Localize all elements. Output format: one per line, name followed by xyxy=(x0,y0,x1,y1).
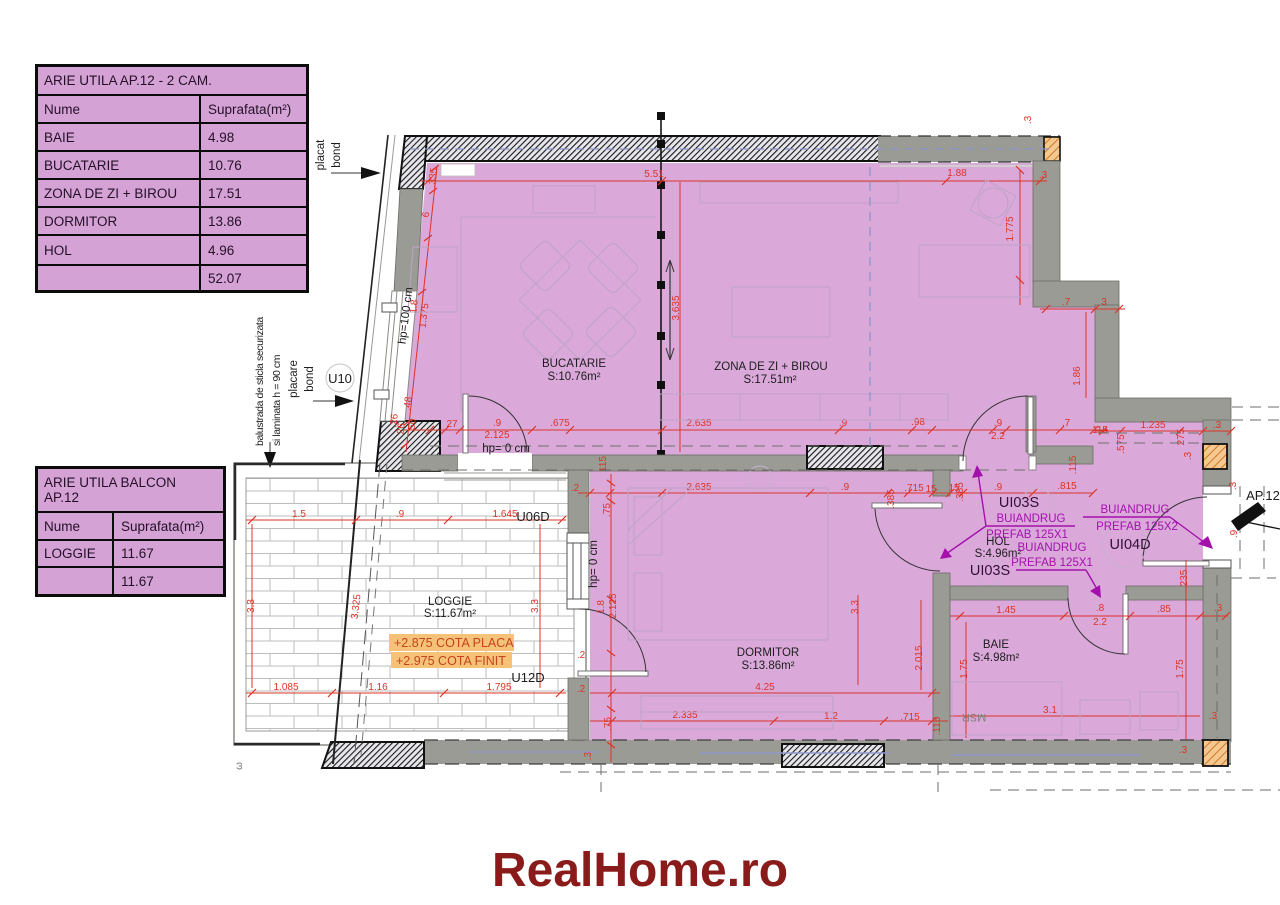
svg-text:.7: .7 xyxy=(1062,297,1071,308)
svg-text:S:17.51m²: S:17.51m² xyxy=(743,374,796,386)
svg-text:3.3: 3.3 xyxy=(246,599,257,613)
svg-text:1.775: 1.775 xyxy=(1005,216,1016,241)
svg-text:1.085: 1.085 xyxy=(273,682,298,693)
svg-text:BUIANDRUG: BUIANDRUG xyxy=(1017,542,1086,554)
svg-text:LOGGIE: LOGGIE xyxy=(428,596,472,608)
svg-text:+2.875 COTA PLACA: +2.875 COTA PLACA xyxy=(394,636,514,650)
svg-text:S:4.98m²: S:4.98m² xyxy=(973,652,1020,664)
svg-text:.675: .675 xyxy=(550,418,570,429)
svg-text:hp= 0 cm: hp= 0 cm xyxy=(588,540,600,588)
svg-text:2.2: 2.2 xyxy=(991,431,1005,442)
svg-text:1.75: 1.75 xyxy=(1175,659,1186,679)
svg-text:UI03S: UI03S xyxy=(970,563,1010,579)
svg-text:3.3: 3.3 xyxy=(530,599,541,613)
svg-text:U10: U10 xyxy=(328,371,352,386)
svg-text:1.86: 1.86 xyxy=(1072,366,1083,386)
svg-text:.715: .715 xyxy=(900,712,920,723)
svg-text:BUCATARIE: BUCATARIE xyxy=(542,358,606,370)
svg-text:+2.975 COTA FINIT: +2.975 COTA FINIT xyxy=(396,654,506,668)
svg-text:1.2: 1.2 xyxy=(824,711,838,722)
svg-text:1.45: 1.45 xyxy=(996,605,1016,616)
svg-text:1.645: 1.645 xyxy=(492,509,517,520)
svg-text:S:13.86m²: S:13.86m² xyxy=(741,660,794,672)
svg-text:.385: .385 xyxy=(886,489,897,509)
svg-text:.3: .3 xyxy=(1039,170,1048,181)
svg-text:BUIANDRUG: BUIANDRUG xyxy=(1100,504,1169,516)
svg-text:bond: bond xyxy=(304,366,316,392)
svg-text:.3: .3 xyxy=(583,751,594,760)
svg-text:.3: .3 xyxy=(1023,115,1034,124)
svg-text:MSR: MSR xyxy=(962,711,987,723)
svg-text:1.16: 1.16 xyxy=(368,682,388,693)
svg-text:.2: .2 xyxy=(571,483,580,494)
svg-text:UI04D: UI04D xyxy=(1109,537,1150,553)
svg-text:1.88: 1.88 xyxy=(947,168,967,179)
svg-text:3.3: 3.3 xyxy=(850,600,861,614)
svg-text:3: 3 xyxy=(1101,297,1107,308)
svg-text:.56: .56 xyxy=(406,418,419,434)
svg-text:1.795: 1.795 xyxy=(486,682,511,693)
svg-text:PREFAB 125X1: PREFAB 125X1 xyxy=(1011,557,1093,569)
svg-text:2.125: 2.125 xyxy=(608,593,619,618)
svg-text:.85: .85 xyxy=(1157,604,1171,615)
svg-text:15: 15 xyxy=(925,484,937,495)
svg-text:ZONA DE ZI + BIROU: ZONA DE ZI + BIROU xyxy=(714,361,827,373)
svg-text:5.51: 5.51 xyxy=(644,169,664,180)
svg-text:UI03S: UI03S xyxy=(999,495,1039,511)
svg-text:ω: ω xyxy=(234,762,245,770)
svg-text:1.235: 1.235 xyxy=(1140,420,1165,431)
svg-text:.2: .2 xyxy=(577,650,586,661)
svg-text:.3: .3 xyxy=(1213,420,1222,431)
svg-text:2.2: 2.2 xyxy=(1093,617,1107,628)
svg-text:.115: .115 xyxy=(932,716,943,735)
svg-text:15: 15 xyxy=(948,483,960,494)
svg-text:1.75: 1.75 xyxy=(959,659,970,679)
svg-text:1.8: 1.8 xyxy=(596,600,607,614)
svg-text:.575: .575 xyxy=(1116,434,1127,454)
svg-text:S:11.67m²: S:11.67m² xyxy=(424,608,476,620)
svg-text:.3: .3 xyxy=(1179,745,1188,756)
svg-text:.8: .8 xyxy=(1096,603,1105,614)
svg-text:.3: .3 xyxy=(1209,711,1218,722)
svg-text:.3: .3 xyxy=(1183,451,1194,460)
svg-text:1.5: 1.5 xyxy=(292,509,306,520)
svg-text:3.1: 3.1 xyxy=(1043,705,1057,716)
svg-text:.7: .7 xyxy=(1062,418,1071,429)
svg-text:si laminata h = 90 cm: si laminata h = 90 cm xyxy=(271,354,283,446)
svg-text:.9: .9 xyxy=(994,418,1003,429)
svg-text:BUIANDRUG: BUIANDRUG xyxy=(996,513,1065,525)
svg-text:.9: .9 xyxy=(396,509,405,520)
svg-text:PREFAB 125X1: PREFAB 125X1 xyxy=(986,529,1068,541)
svg-text:bond: bond xyxy=(331,142,343,168)
svg-text:.3: .3 xyxy=(1228,481,1239,490)
svg-text:.48: .48 xyxy=(402,396,415,412)
svg-text:.2: .2 xyxy=(577,684,586,695)
svg-text:placat: placat xyxy=(315,139,327,170)
svg-text:.98: .98 xyxy=(911,417,925,428)
svg-text:U12D: U12D xyxy=(511,670,544,685)
svg-text:.9: .9 xyxy=(493,418,502,429)
svg-text:4.25: 4.25 xyxy=(755,682,775,693)
svg-text:.9: .9 xyxy=(994,482,1003,493)
svg-text:.9: .9 xyxy=(841,482,850,493)
svg-text:U06D: U06D xyxy=(516,509,549,524)
svg-text:AP.12: AP.12 xyxy=(1246,488,1280,503)
svg-text:hp= 0 cm: hp= 0 cm xyxy=(482,443,530,455)
svg-text:.715: .715 xyxy=(904,483,924,494)
svg-text:27: 27 xyxy=(446,419,458,430)
svg-text:2.125: 2.125 xyxy=(484,430,509,441)
svg-text:2.015: 2.015 xyxy=(914,645,925,670)
svg-text:.3: .3 xyxy=(1214,603,1223,614)
svg-text:BAIE: BAIE xyxy=(983,639,1010,651)
svg-text:placare: placare xyxy=(288,360,300,398)
svg-text:235: 235 xyxy=(1179,569,1190,586)
svg-text:.75: .75 xyxy=(602,503,613,517)
svg-text:DORMITOR: DORMITOR xyxy=(737,647,799,659)
svg-text:.115: .115 xyxy=(1068,455,1079,474)
svg-text:balustrada de sticla securizat: balustrada de sticla securizata xyxy=(254,317,266,446)
svg-text:PREFAB 125X2: PREFAB 125X2 xyxy=(1096,521,1178,533)
svg-text:.815: .815 xyxy=(1057,481,1077,492)
svg-text:S:10.76m²: S:10.76m² xyxy=(547,371,600,383)
